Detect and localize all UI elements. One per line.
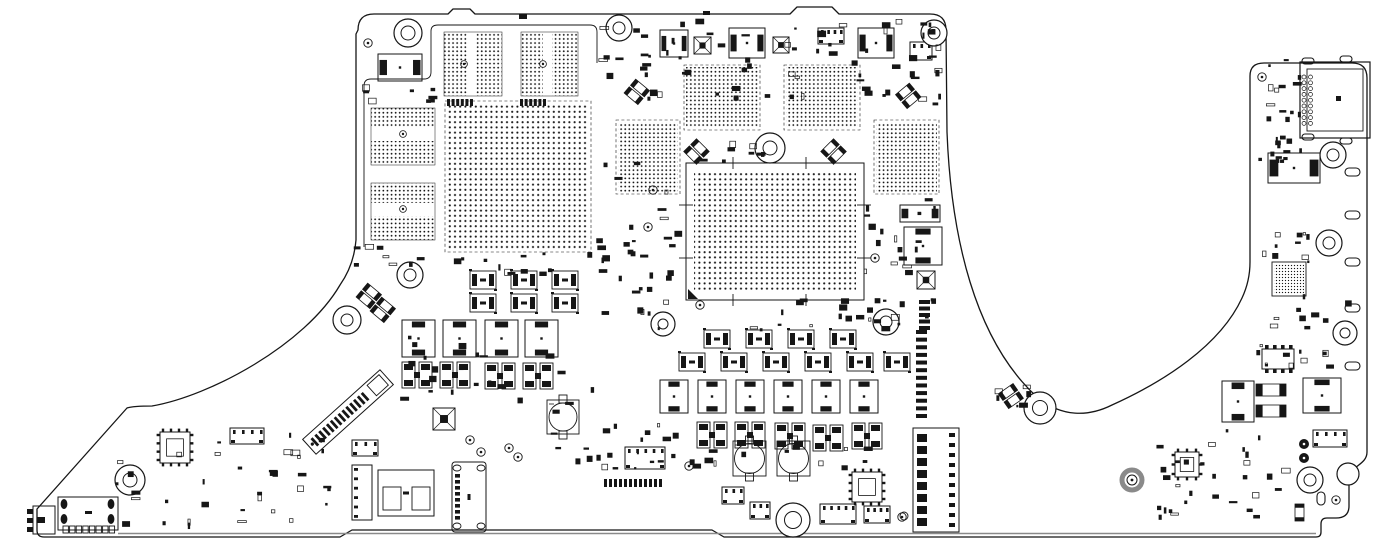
edge-pad	[1340, 56, 1352, 62]
bga-grid-io-bga	[1272, 262, 1306, 296]
bga-grid-vram-right	[874, 120, 939, 194]
mounting-hole	[651, 312, 675, 336]
mounting-hole	[776, 503, 810, 537]
pcb-assembly-drawing	[0, 0, 1376, 541]
bga-grid-vram-left	[616, 120, 680, 194]
mounting-hole	[333, 306, 361, 334]
bga-grid-gpu	[445, 101, 591, 252]
bga-grid-vram-top-left	[684, 65, 760, 130]
mounting-hole	[1320, 142, 1346, 168]
mounting-hole	[1316, 230, 1342, 256]
mounting-hole	[115, 465, 145, 495]
mounting-hole	[1337, 463, 1359, 485]
mounting-hole	[606, 15, 632, 41]
mounting-hole	[1297, 467, 1323, 493]
mounting-hole	[394, 19, 422, 47]
cpu-package	[679, 157, 871, 306]
pcb-board-svg	[0, 0, 1376, 541]
mounting-hole	[1333, 321, 1357, 345]
mounting-hole	[755, 133, 785, 163]
